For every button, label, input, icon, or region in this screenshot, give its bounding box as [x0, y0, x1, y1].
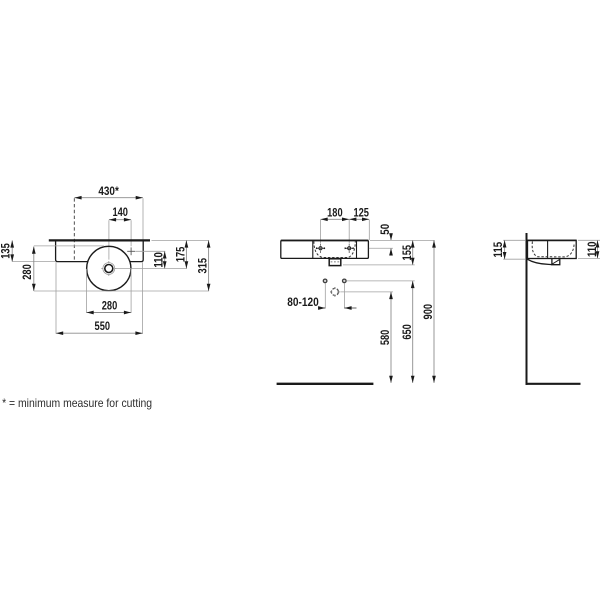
- svg-text:80-120: 80-120: [287, 295, 319, 309]
- svg-text:280: 280: [102, 299, 118, 313]
- svg-text:155: 155: [400, 245, 414, 261]
- svg-text:115: 115: [491, 242, 505, 258]
- svg-text:140: 140: [112, 205, 128, 219]
- svg-text:180: 180: [327, 206, 343, 220]
- svg-text:280: 280: [20, 264, 34, 280]
- svg-text:* = minimum measure for cuttin: * = minimum measure for cutting: [2, 397, 152, 410]
- svg-text:175: 175: [173, 246, 187, 262]
- svg-text:50: 50: [378, 224, 392, 235]
- svg-text:110: 110: [152, 252, 166, 268]
- svg-text:110: 110: [585, 241, 599, 257]
- svg-text:580: 580: [378, 329, 392, 345]
- svg-text:135: 135: [0, 243, 12, 259]
- svg-text:550: 550: [95, 319, 111, 333]
- svg-text:315: 315: [196, 258, 210, 274]
- svg-text:430*: 430*: [98, 184, 119, 198]
- svg-text:650: 650: [400, 324, 414, 340]
- svg-text:125: 125: [353, 206, 369, 220]
- svg-text:900: 900: [421, 304, 435, 320]
